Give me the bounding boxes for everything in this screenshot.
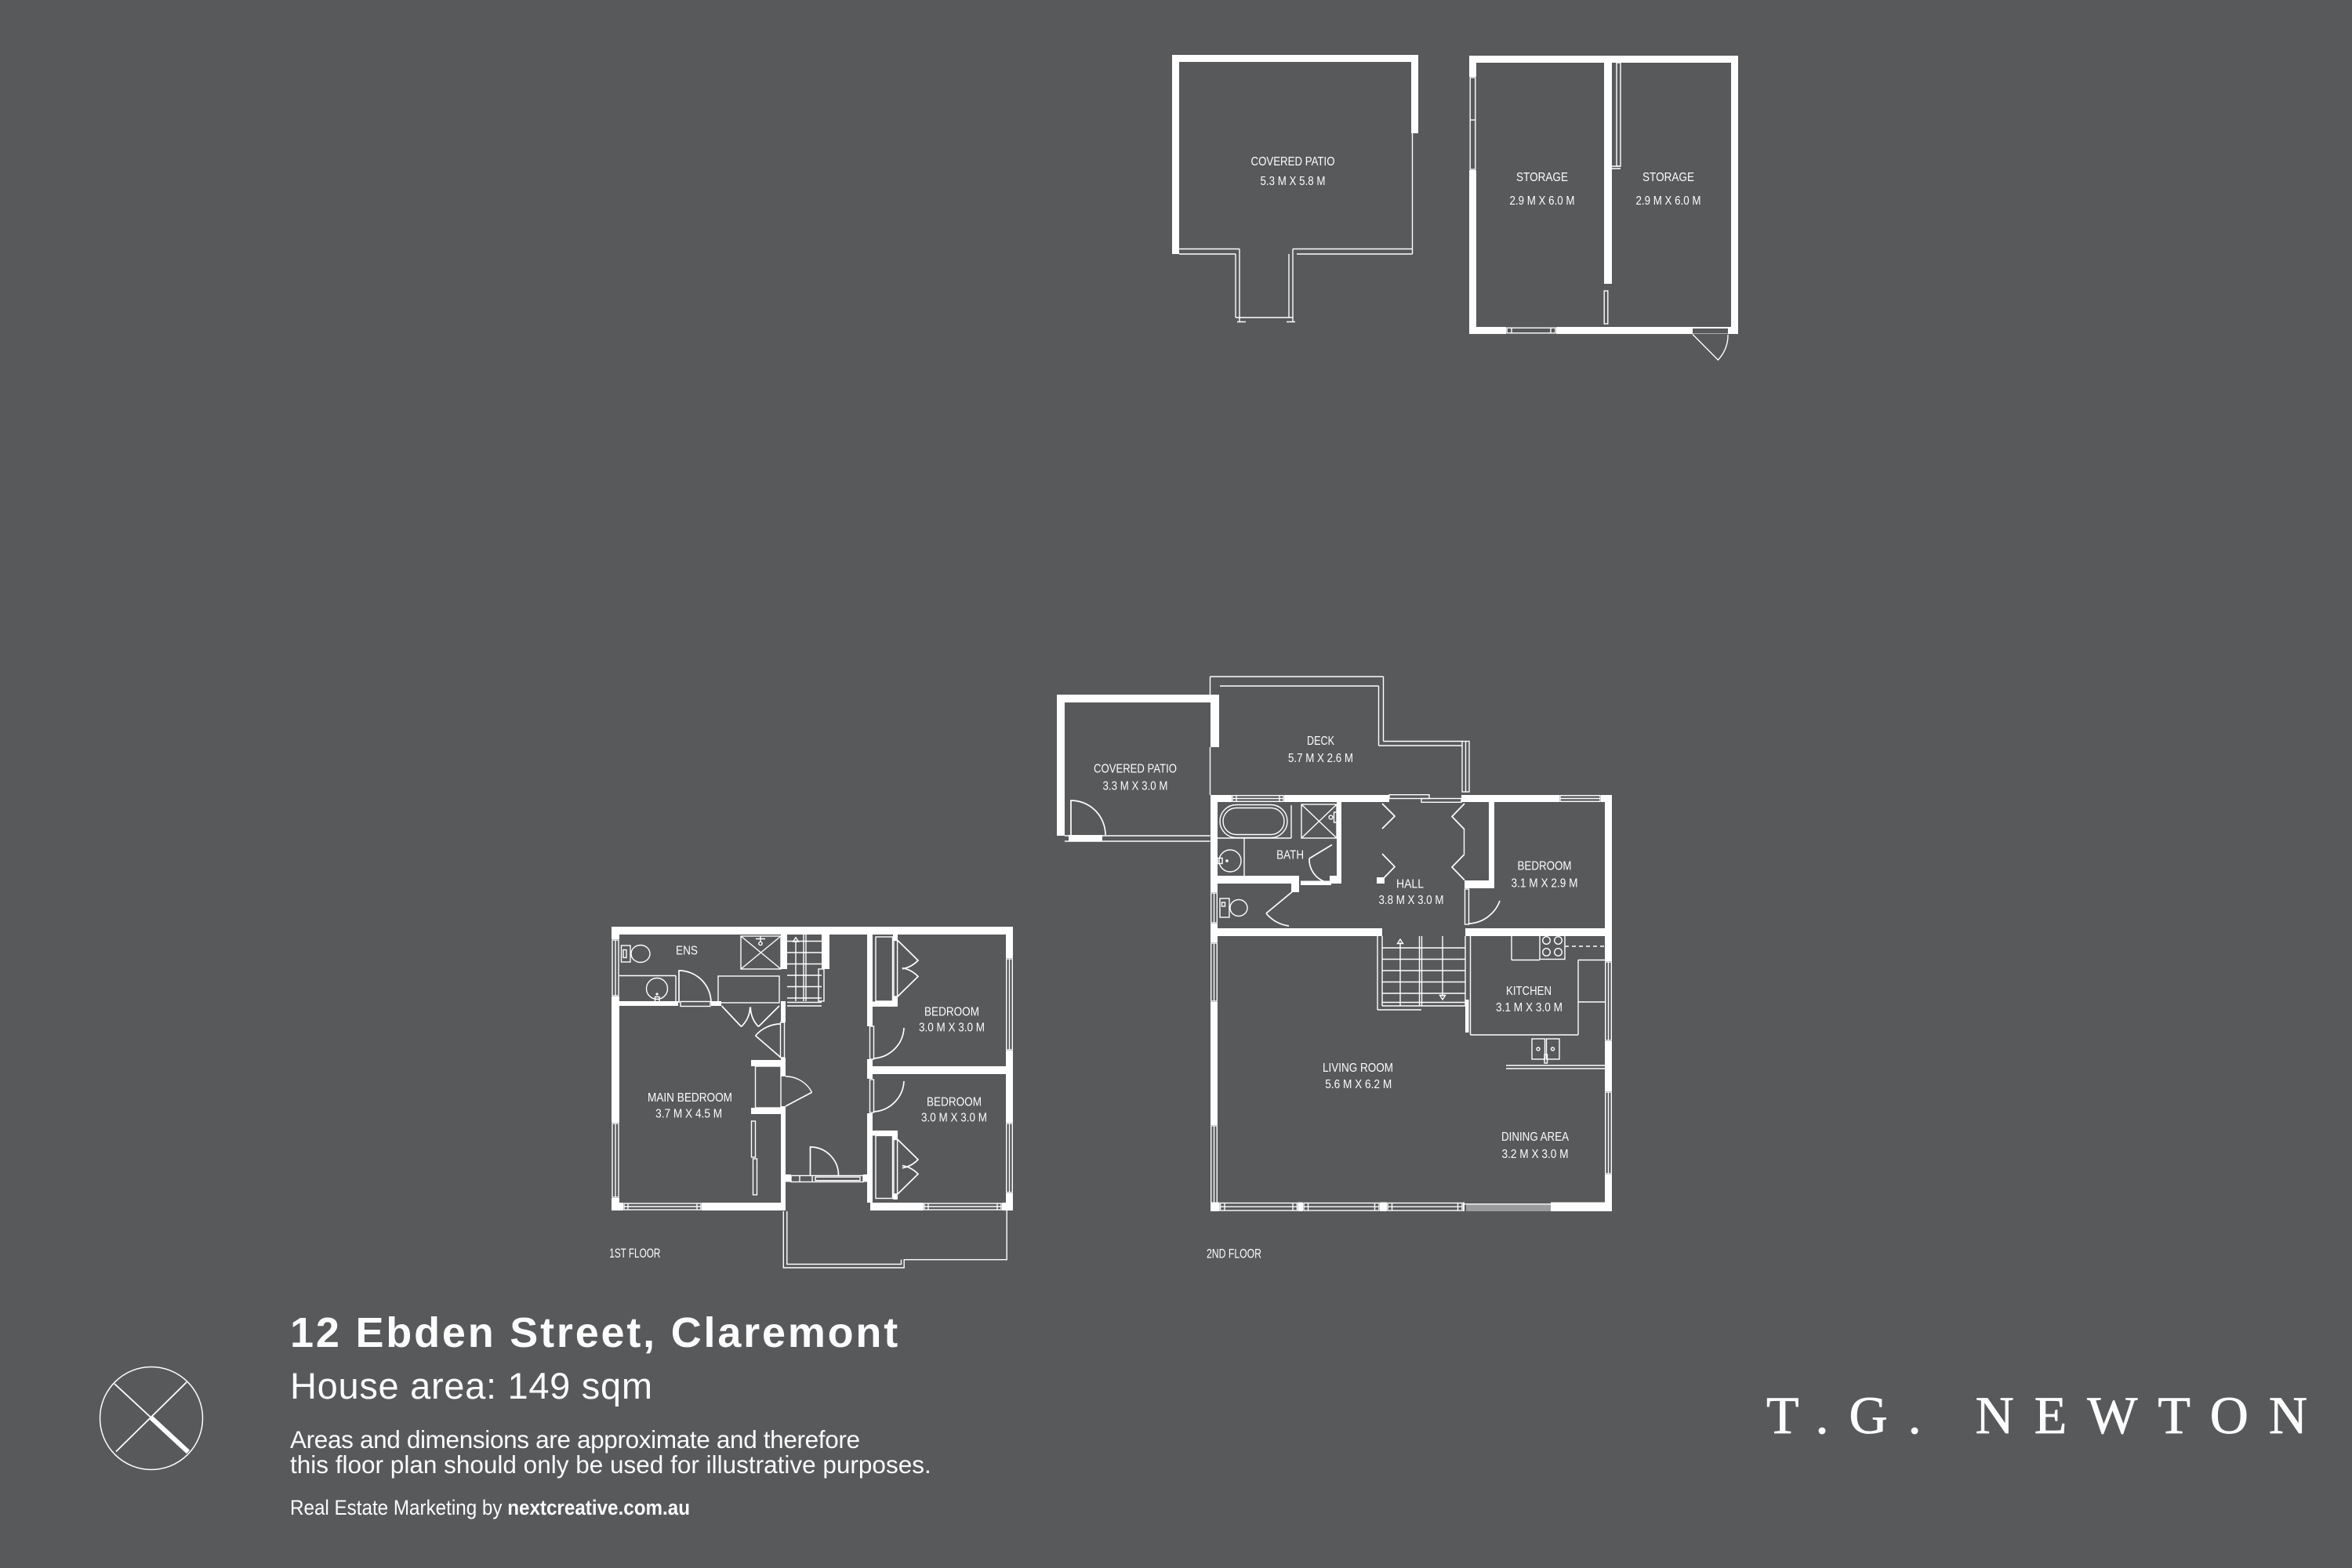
- svg-text:3.8 M X 3.0 M: 3.8 M X 3.0 M: [1379, 894, 1444, 907]
- svg-text:KITCHEN: KITCHEN: [1506, 985, 1552, 998]
- svg-text:DECK: DECK: [1307, 735, 1334, 748]
- svg-text:T.G. NEWTON: T.G. NEWTON: [1766, 1385, 2328, 1445]
- svg-text:2.9 M X 6.0 M: 2.9 M X 6.0 M: [1510, 194, 1575, 208]
- svg-text:Areas and dimensions are appro: Areas and dimensions are approximate and…: [290, 1425, 860, 1454]
- svg-text:LIVING ROOM: LIVING ROOM: [1323, 1062, 1393, 1075]
- svg-text:ENS: ENS: [676, 945, 698, 958]
- svg-text:BEDROOM: BEDROOM: [927, 1096, 982, 1109]
- svg-text:12 Ebden Street, Claremont: 12 Ebden Street, Claremont: [290, 1309, 900, 1356]
- svg-text:COVERED PATIO: COVERED PATIO: [1094, 763, 1177, 776]
- svg-text:2.9 M X 6.0 M: 2.9 M X 6.0 M: [1636, 194, 1701, 208]
- svg-text:this floor plan should only be: this floor plan should only be used for …: [290, 1450, 931, 1479]
- svg-text:5.3 M X 5.8 M: 5.3 M X 5.8 M: [1261, 175, 1326, 188]
- svg-text:COVERED PATIO: COVERED PATIO: [1251, 155, 1335, 169]
- svg-text:1ST FLOOR: 1ST FLOOR: [609, 1246, 660, 1261]
- svg-text:DINING AREA: DINING AREA: [1501, 1131, 1569, 1144]
- svg-text:Real Estate Marketing by nextc: Real Estate Marketing by nextcreative.co…: [290, 1496, 690, 1519]
- svg-text:3.7 M X 4.5 M: 3.7 M X 4.5 M: [655, 1107, 722, 1120]
- svg-text:BEDROOM: BEDROOM: [1518, 859, 1572, 873]
- svg-text:HALL: HALL: [1396, 878, 1424, 891]
- svg-text:3.0 M X 3.0 M: 3.0 M X 3.0 M: [919, 1022, 985, 1035]
- svg-text:3.3 M X 3.0 M: 3.3 M X 3.0 M: [1103, 780, 1168, 793]
- svg-text:BEDROOM: BEDROOM: [924, 1005, 979, 1018]
- svg-text:BATH: BATH: [1276, 849, 1304, 862]
- svg-text:3.2 M X 3.0 M: 3.2 M X 3.0 M: [1502, 1148, 1569, 1161]
- svg-text:3.1 M X 2.9 M: 3.1 M X 2.9 M: [1512, 877, 1578, 891]
- svg-text:STORAGE: STORAGE: [1516, 171, 1568, 184]
- svg-text:3.1 M X 3.0 M: 3.1 M X 3.0 M: [1496, 1001, 1563, 1014]
- svg-text:5.6 M X 6.2 M: 5.6 M X 6.2 M: [1325, 1078, 1392, 1091]
- svg-text:STORAGE: STORAGE: [1642, 171, 1694, 184]
- svg-text:2ND FLOOR: 2ND FLOOR: [1207, 1247, 1261, 1261]
- svg-text:House area: 149 sqm: House area: 149 sqm: [290, 1365, 653, 1406]
- svg-text:5.7 M X 2.6 M: 5.7 M X 2.6 M: [1288, 752, 1353, 765]
- svg-text:MAIN BEDROOM: MAIN BEDROOM: [648, 1091, 732, 1105]
- svg-text:3.0 M X 3.0 M: 3.0 M X 3.0 M: [921, 1112, 987, 1125]
